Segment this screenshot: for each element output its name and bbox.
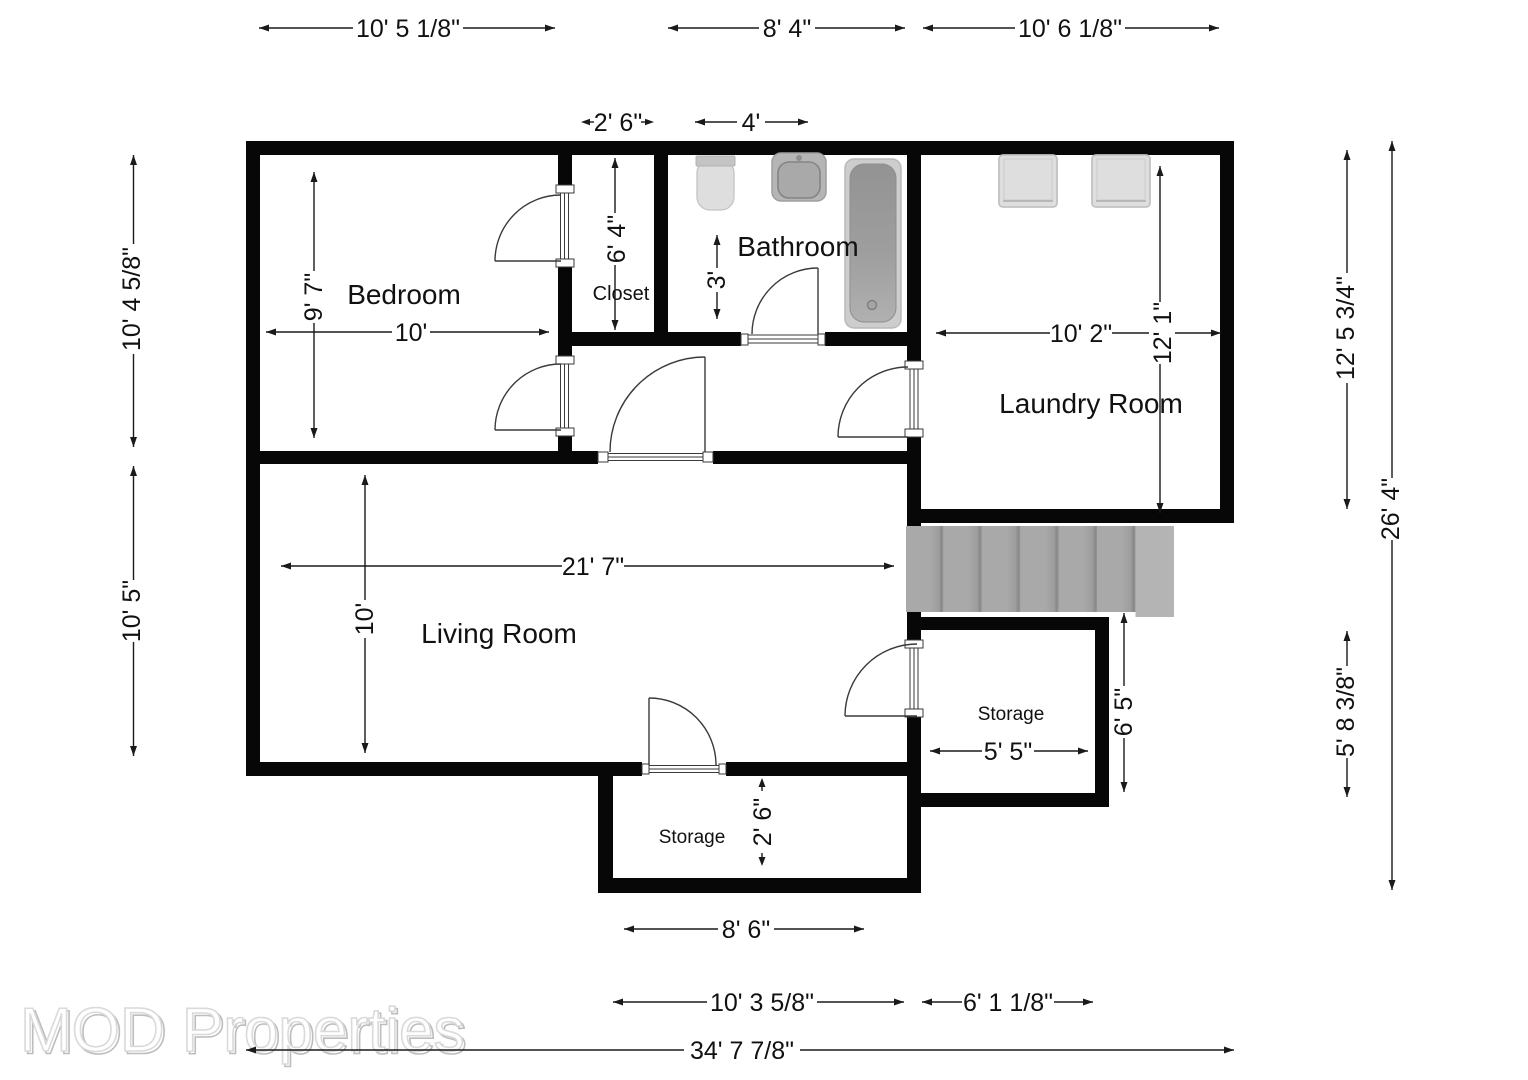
svg-text:10': 10': [351, 603, 379, 636]
svg-text:Storage: Storage: [659, 827, 726, 848]
svg-text:10' 6 1/8": 10' 6 1/8": [1018, 15, 1122, 43]
svg-text:6' 1 1/8": 6' 1 1/8": [963, 989, 1053, 1017]
svg-text:Bedroom: Bedroom: [347, 279, 461, 310]
svg-text:Laundry Room: Laundry Room: [999, 388, 1183, 419]
svg-text:Living Room: Living Room: [421, 618, 577, 649]
svg-text:34' 7 7/8": 34' 7 7/8": [690, 1037, 794, 1065]
svg-text:Closet: Closet: [593, 283, 650, 305]
svg-text:3': 3': [703, 271, 731, 290]
svg-text:26' 4": 26' 4": [1377, 478, 1405, 540]
svg-text:10' 5": 10' 5": [118, 580, 146, 642]
svg-text:4': 4': [742, 109, 761, 137]
svg-text:6' 4": 6' 4": [603, 215, 631, 263]
svg-text:MOD Properties: MOD Properties: [20, 996, 464, 1065]
svg-text:10' 3 5/8": 10' 3 5/8": [710, 989, 814, 1017]
svg-text:10' 5 1/8": 10' 5 1/8": [356, 15, 460, 43]
svg-text:6' 5": 6' 5": [1110, 688, 1138, 736]
svg-text:8' 6": 8' 6": [722, 916, 770, 944]
svg-text:2' 6": 2' 6": [749, 798, 777, 846]
svg-text:9' 7": 9' 7": [300, 273, 328, 321]
svg-text:2' 6": 2' 6": [594, 109, 642, 137]
svg-text:10' 4 5/8": 10' 4 5/8": [118, 247, 146, 351]
svg-text:10': 10': [395, 319, 428, 347]
svg-text:5' 5": 5' 5": [984, 738, 1032, 766]
svg-text:21' 7": 21' 7": [562, 553, 624, 581]
svg-text:12' 5 3/4": 12' 5 3/4": [1332, 276, 1360, 380]
svg-text:8' 4": 8' 4": [763, 15, 811, 43]
svg-text:Storage: Storage: [978, 704, 1045, 725]
svg-text:10' 2": 10' 2": [1050, 320, 1112, 348]
svg-text:5' 8 3/8": 5' 8 3/8": [1332, 667, 1360, 757]
svg-text:Bathroom: Bathroom: [737, 231, 858, 262]
svg-text:12' 1": 12' 1": [1149, 302, 1177, 364]
